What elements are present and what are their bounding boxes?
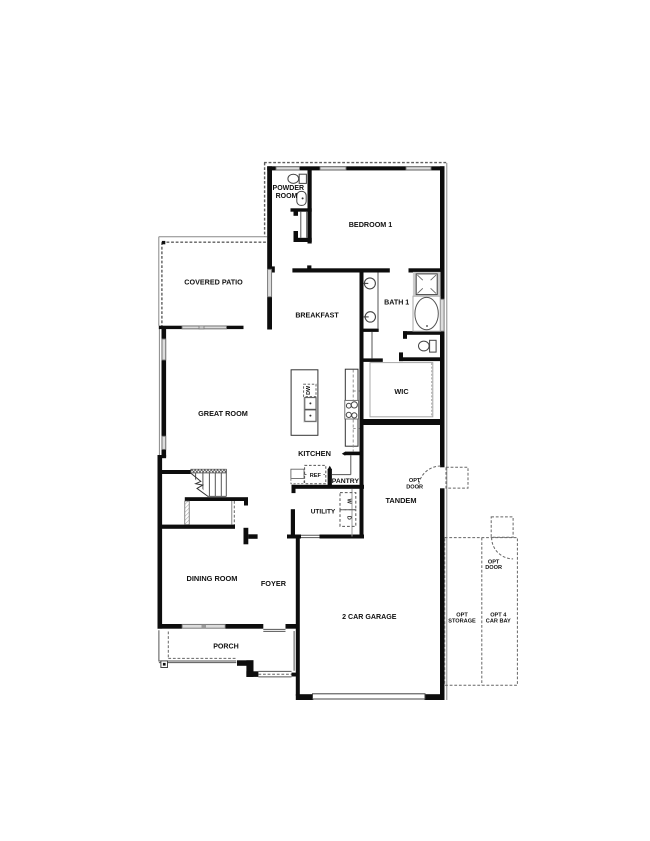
- svg-text:WIC: WIC: [394, 387, 409, 396]
- svg-text:KITCHEN: KITCHEN: [298, 449, 331, 458]
- svg-text:OPT: OPT: [409, 478, 421, 484]
- svg-text:REF: REF: [310, 473, 322, 479]
- svg-text:GREAT ROOM: GREAT ROOM: [198, 409, 248, 418]
- svg-text:BEDROOM 1: BEDROOM 1: [349, 220, 393, 229]
- svg-text:DOOR: DOOR: [406, 484, 423, 490]
- svg-text:PORCH: PORCH: [213, 643, 239, 651]
- svg-text:STORAGE: STORAGE: [448, 619, 476, 625]
- svg-text:FOYER: FOYER: [261, 579, 287, 588]
- svg-text:2 CAR GARAGE: 2 CAR GARAGE: [342, 613, 397, 621]
- svg-text:BATH 1: BATH 1: [384, 298, 409, 306]
- svg-text:D: D: [346, 516, 352, 520]
- svg-text:PANTRY: PANTRY: [332, 478, 360, 485]
- svg-text:DW: DW: [306, 385, 312, 395]
- svg-text:COVERED PATIO: COVERED PATIO: [184, 278, 243, 287]
- svg-text:ROOM: ROOM: [276, 193, 298, 200]
- svg-text:POWDER: POWDER: [273, 185, 305, 192]
- svg-text:CAR BAY: CAR BAY: [486, 619, 511, 625]
- svg-text:DINING ROOM: DINING ROOM: [187, 574, 238, 583]
- svg-text:UTILITY: UTILITY: [311, 509, 336, 516]
- svg-text:BREAKFAST: BREAKFAST: [295, 311, 339, 319]
- svg-text:DOOR: DOOR: [485, 565, 502, 571]
- svg-text:TANDEM: TANDEM: [385, 496, 416, 505]
